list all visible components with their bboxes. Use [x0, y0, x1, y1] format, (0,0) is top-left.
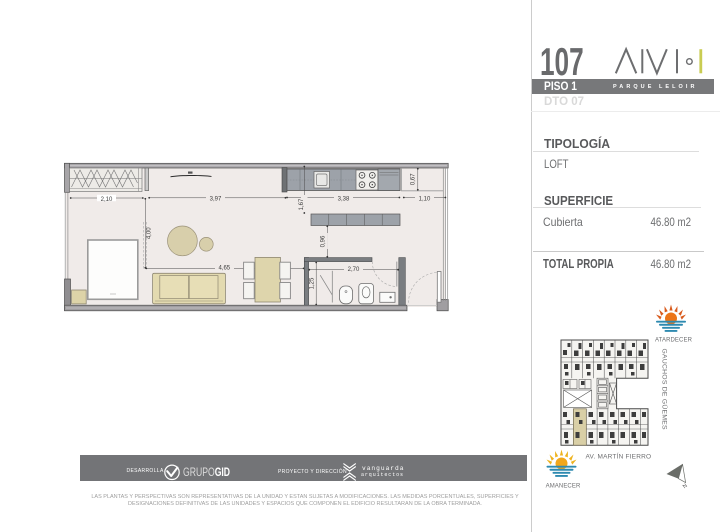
svg-text:GAUCHOS DE GÜEMES: GAUCHOS DE GÜEMES	[660, 349, 668, 431]
svg-text:AV. MARTÍN FIERRO: AV. MARTÍN FIERRO	[586, 451, 652, 460]
svg-text:2,70: 2,70	[348, 267, 360, 273]
svg-text:1,10: 1,10	[419, 196, 431, 202]
svg-text:ATARDECER: ATARDECER	[655, 338, 693, 344]
svg-text:1,25: 1,25	[309, 277, 315, 289]
svg-text:4,65: 4,65	[218, 265, 230, 271]
svg-text:2,10: 2,10	[101, 197, 113, 203]
svg-text:N: N	[682, 483, 689, 490]
svg-text:3,38: 3,38	[338, 196, 350, 202]
svg-text:4,00: 4,00	[147, 227, 153, 239]
svg-text:0,96: 0,96	[320, 235, 326, 247]
svg-text:AMANECER: AMANECER	[546, 484, 581, 490]
svg-text:0,67: 0,67	[411, 173, 417, 185]
svg-text:1,67: 1,67	[299, 198, 305, 210]
svg-text:3,97: 3,97	[210, 197, 222, 203]
